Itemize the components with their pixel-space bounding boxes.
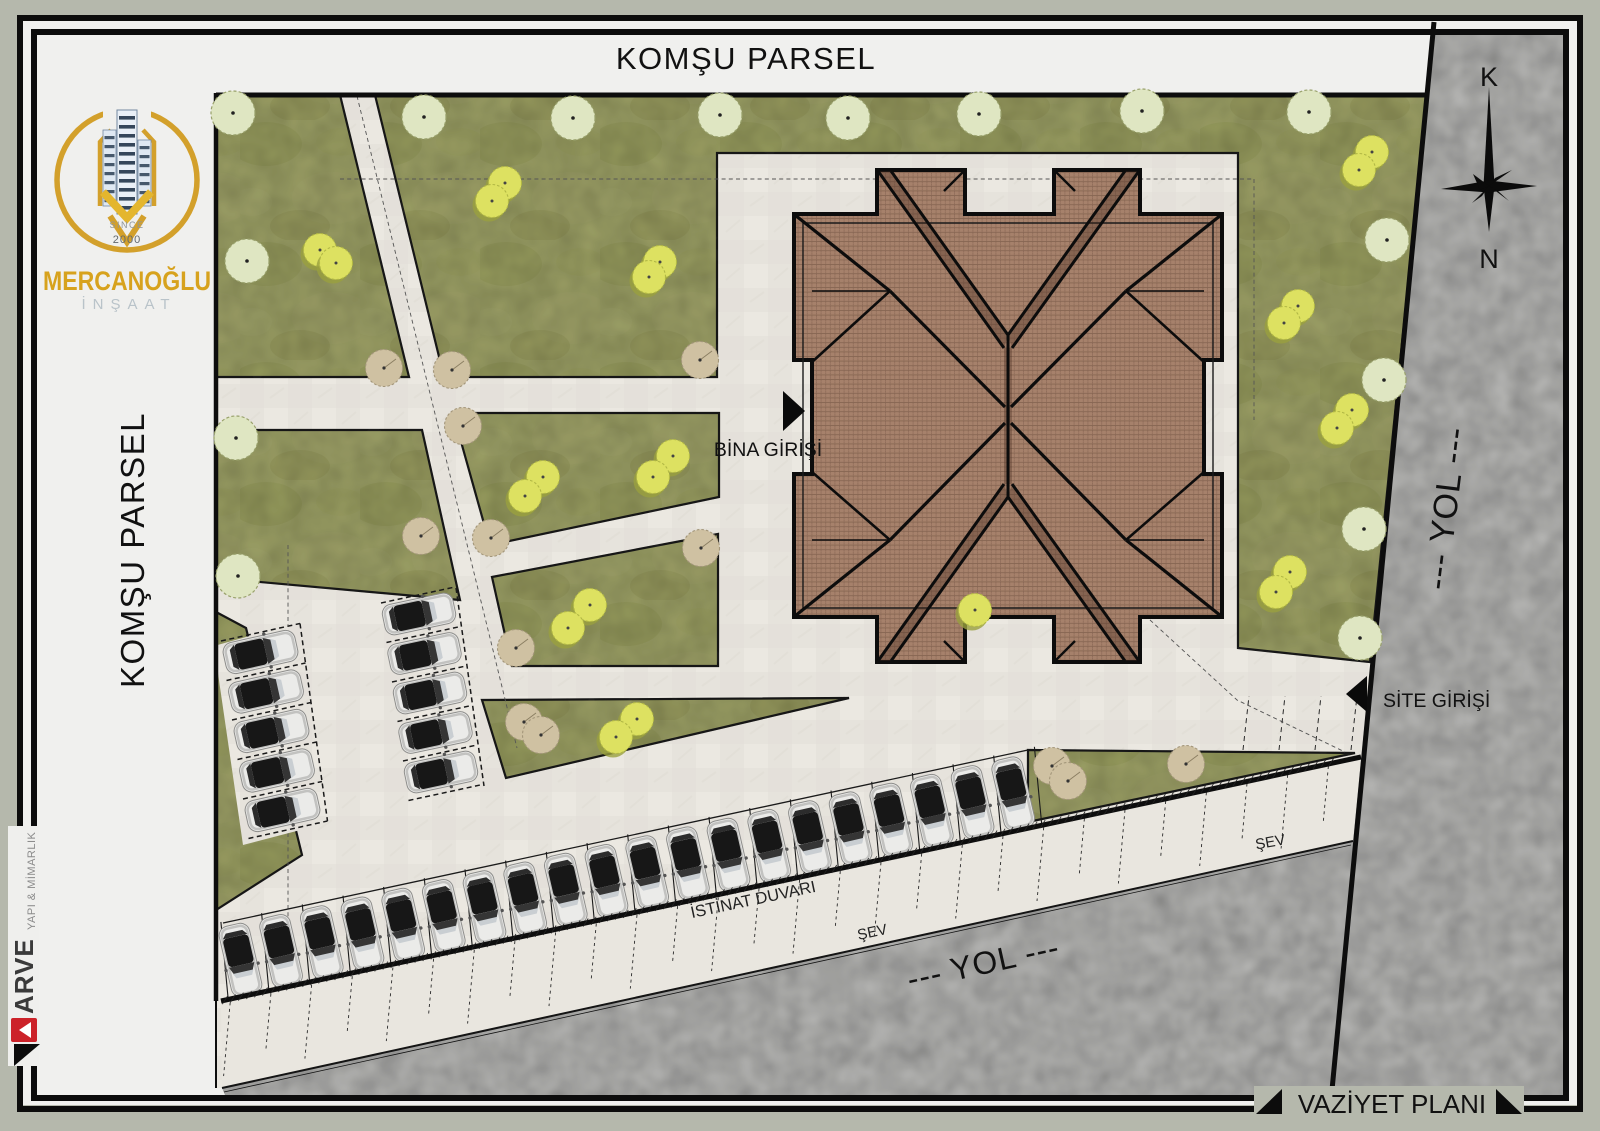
svg-text:SİTE GİRİŞİ: SİTE GİRİŞİ <box>1383 689 1490 712</box>
svg-text:YAPI & MİMARLIK: YAPI & MİMARLIK <box>25 831 38 930</box>
svg-text:MERCANOĞLU: MERCANOĞLU <box>43 265 211 296</box>
svg-text:KOMŞU PARSEL: KOMŞU PARSEL <box>616 41 876 76</box>
svg-text:ARVE: ARVE <box>9 938 39 1014</box>
svg-text:SINCE: SINCE <box>109 220 144 230</box>
svg-text:İNŞAAT: İNŞAAT <box>81 295 176 313</box>
svg-text:VAZİYET PLANI: VAZİYET PLANI <box>1298 1089 1486 1119</box>
svg-text:N: N <box>1479 244 1499 274</box>
svg-text:KOMŞU PARSEL: KOMŞU PARSEL <box>114 412 151 688</box>
svg-text:2000: 2000 <box>113 234 141 246</box>
svg-text:BİNA GİRİŞİ: BİNA GİRİŞİ <box>714 438 822 461</box>
svg-text:K: K <box>1480 62 1498 92</box>
